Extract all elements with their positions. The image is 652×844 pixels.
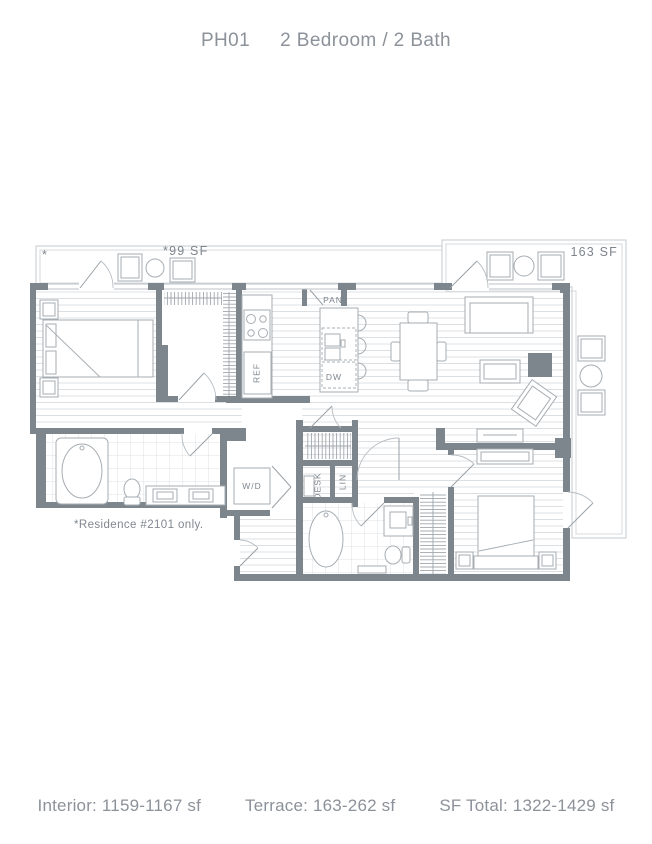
dining-table — [400, 323, 437, 380]
terrace-right-area-label: 163 SF — [570, 245, 618, 259]
bathtub — [56, 438, 108, 504]
entry-hallway-floor — [240, 508, 296, 574]
vanity — [384, 506, 413, 536]
accent-square — [528, 353, 552, 377]
toilet-tank — [402, 547, 410, 563]
dining-chair — [408, 312, 428, 323]
terrace-left-area-label: *99 SF — [163, 244, 208, 258]
coffee-table — [480, 360, 520, 383]
refrigerator-label: REF — [251, 363, 261, 383]
floor-plan-page: PH01 2 Bedroom / 2 Bath * *99 SF — [0, 0, 652, 844]
freestanding-tub — [309, 511, 343, 567]
dining-chair — [408, 380, 428, 391]
desk-label: DESK — [312, 472, 322, 499]
interior-sf: Interior: 1159-1167 sf — [38, 796, 201, 816]
dining-chair — [437, 342, 446, 361]
terrace-sf: Terrace: 163-262 sf — [245, 796, 395, 816]
dining-chair — [391, 342, 400, 361]
terrace-left-asterisk: * — [42, 248, 48, 262]
toilet-tank — [124, 497, 140, 505]
total-sf: SF Total: 1322-1429 sf — [439, 796, 614, 816]
residence-note: *Residence #2101 only. — [74, 519, 203, 531]
bench — [138, 320, 153, 377]
washer-dryer-label: W/D — [242, 481, 262, 491]
sofa — [465, 297, 533, 333]
dishwasher-label: DW — [326, 372, 342, 382]
floor-plan-drawing: * *99 SF 163 SF — [0, 0, 652, 844]
hanger-rod — [223, 292, 236, 396]
bed — [478, 496, 534, 558]
headboard — [474, 556, 538, 569]
dresser — [477, 449, 533, 464]
hanger-rod — [164, 292, 222, 305]
toilet — [385, 546, 401, 564]
pantry-label: PAN — [323, 295, 343, 305]
area-summary: Interior: 1159-1167 sf Terrace: 163-262 … — [0, 796, 652, 816]
linen-label: LIN — [337, 474, 347, 490]
shower-bench — [358, 566, 386, 573]
toilet — [124, 479, 140, 499]
master-closet — [420, 492, 446, 574]
